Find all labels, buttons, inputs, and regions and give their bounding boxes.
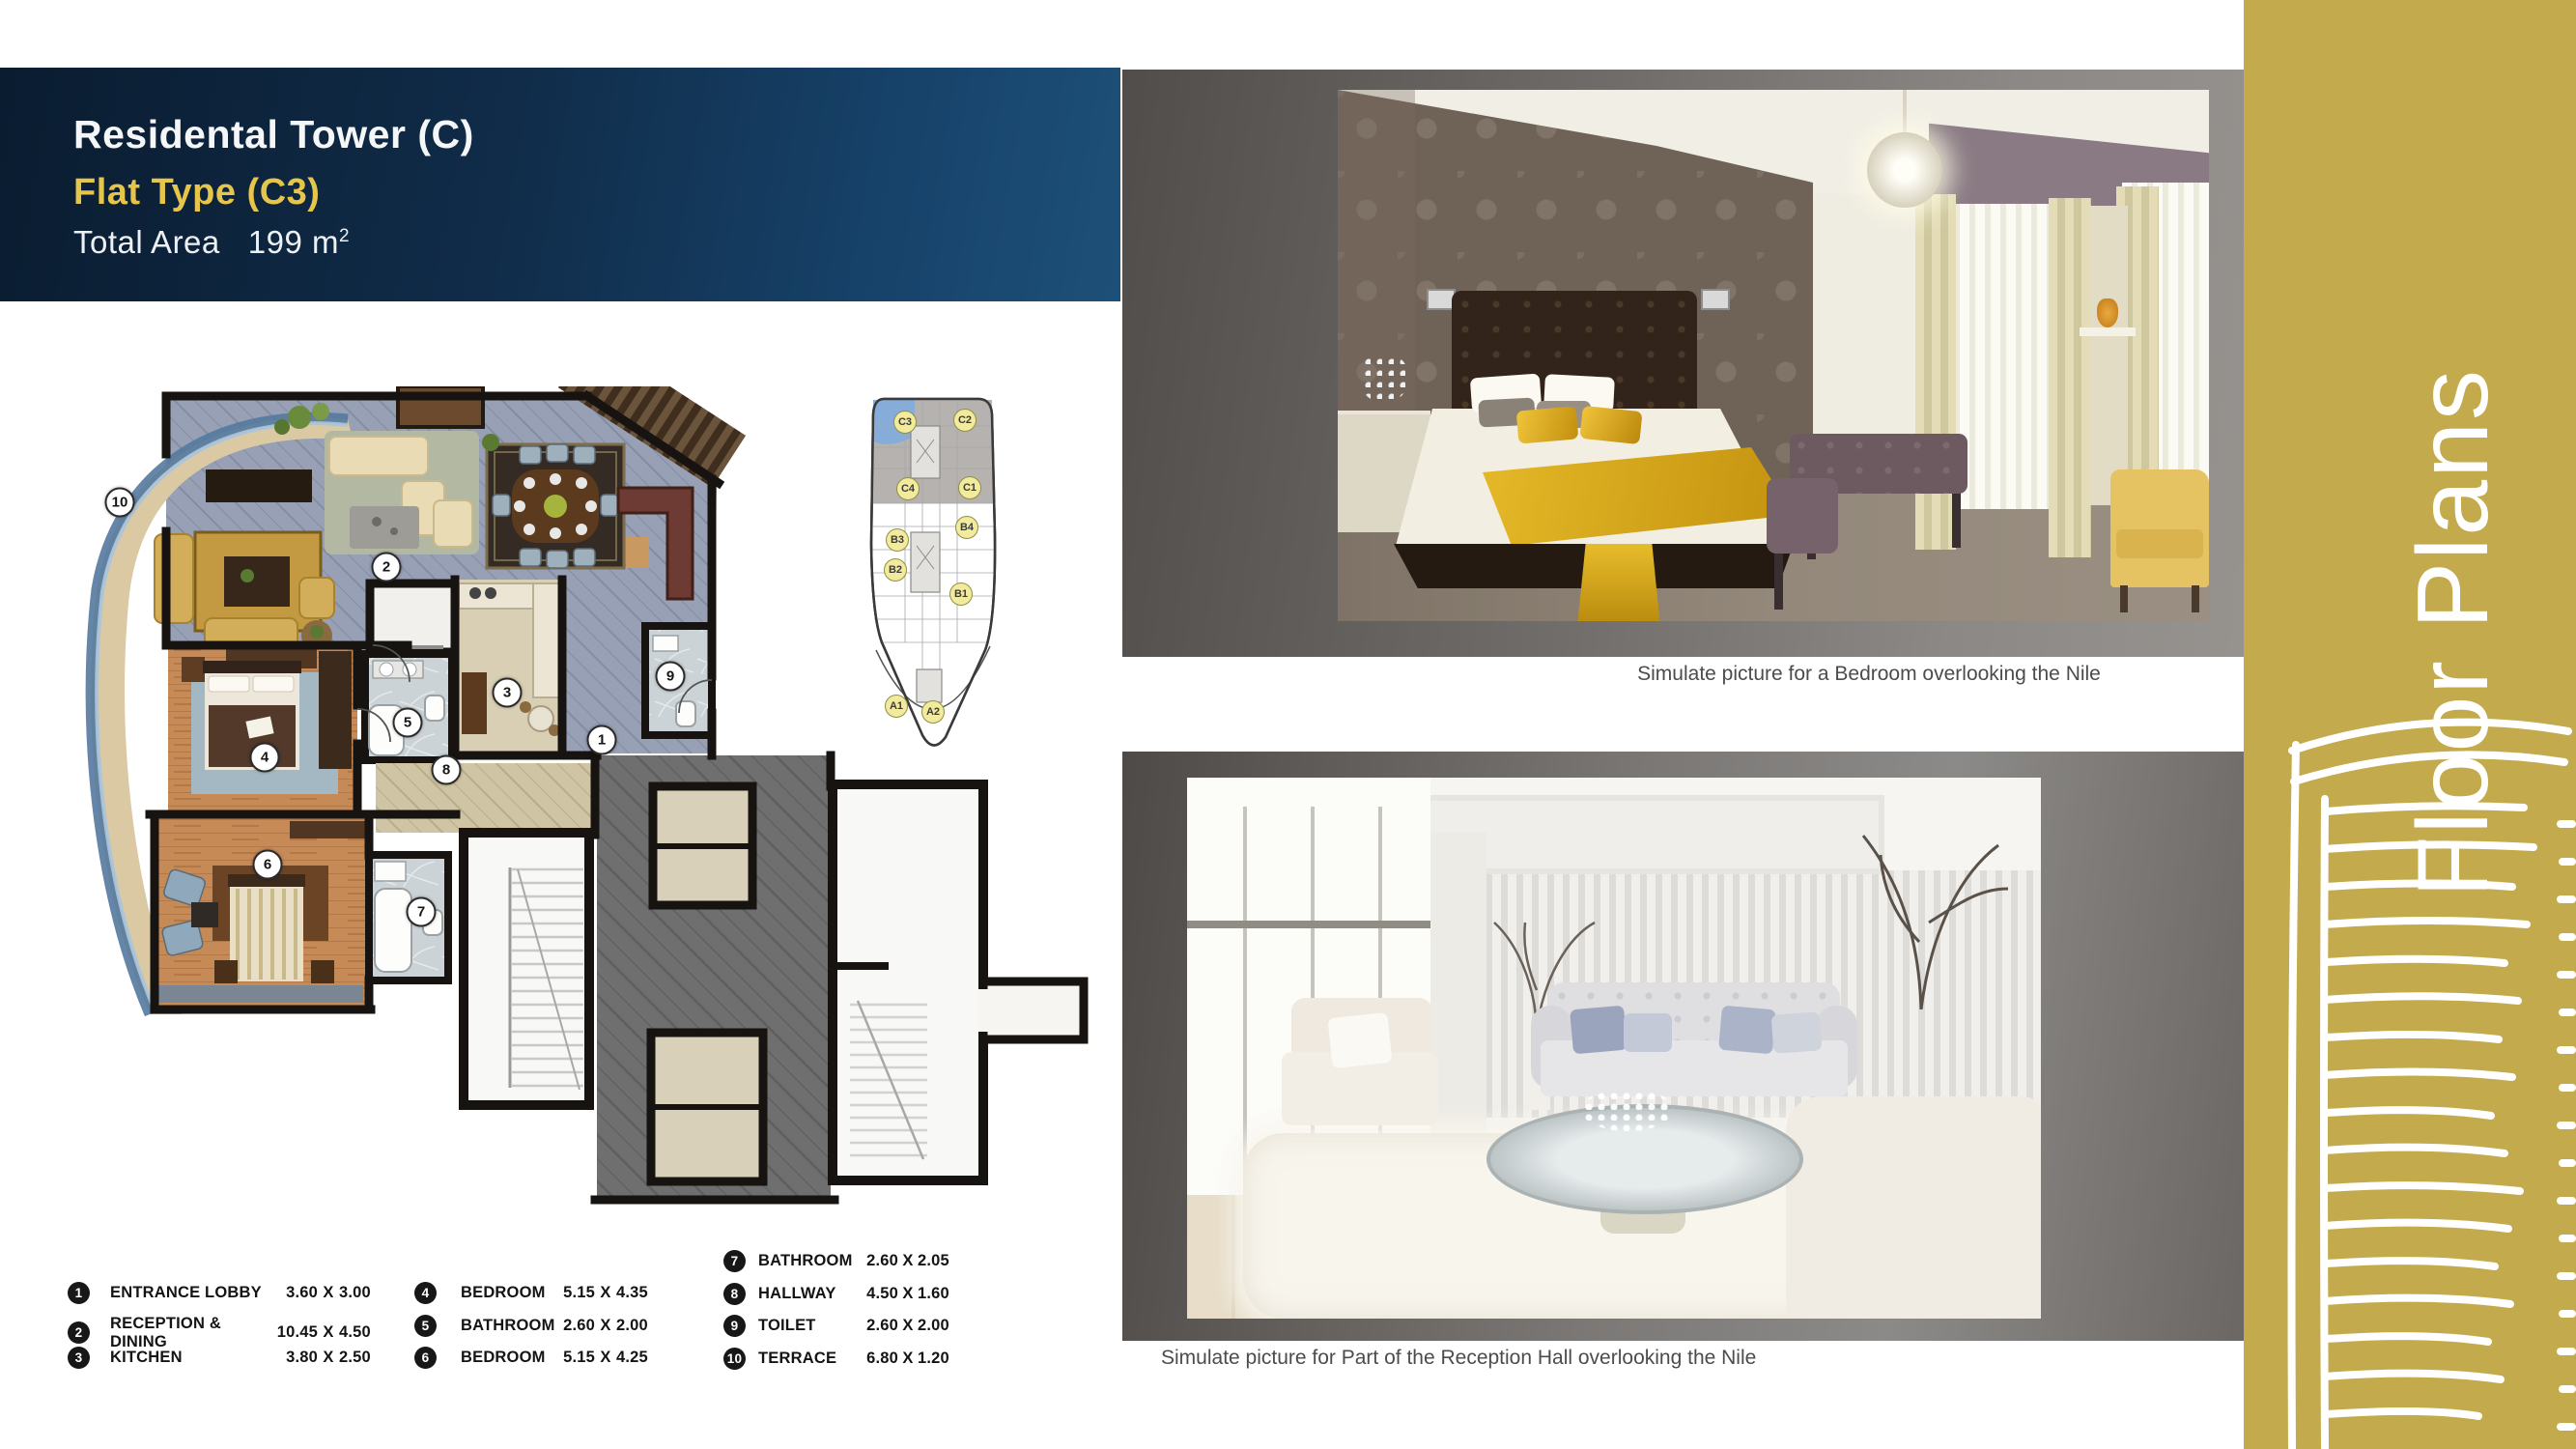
legend-room-name: BEDROOM [461, 1284, 558, 1302]
legend-room-name: BEDROOM [461, 1349, 558, 1367]
legend-number-badge: 6 [414, 1347, 437, 1369]
total-area-line: Total Area 199 m2 [73, 224, 350, 261]
yellow-armchair [2110, 469, 2209, 587]
legend-dimension-height: 1.20 [918, 1350, 961, 1368]
key-plan-unit-label: A2 [926, 706, 940, 718]
legend-number-badge: 5 [414, 1315, 437, 1337]
legend-dimension-separator: X [595, 1349, 616, 1367]
legend-number-badge: 9 [723, 1315, 746, 1337]
key-plan-unit-label: C1 [963, 482, 977, 494]
key-plan-unit-badge: C2 [953, 409, 977, 432]
legend-dimension-height: 2.00 [918, 1317, 961, 1335]
plan-room-marker: 7 [407, 897, 437, 927]
legend-number-badge: 3 [68, 1347, 90, 1369]
plan-room-marker: 1 [587, 725, 617, 755]
header-banner: Residental Tower (C) Flat Type (C3) Tota… [0, 68, 1120, 301]
legend-room-name: ENTRANCE LOBBY [110, 1284, 268, 1302]
legend-row: 2 RECEPTION & DINING 10.45 X 4.50 [68, 1315, 385, 1336]
plan-room-marker-number: 2 [382, 559, 390, 576]
legend-number-badge: 7 [723, 1250, 746, 1272]
plan-room-marker-number: 8 [442, 762, 450, 779]
tower-sketch-icon [2280, 710, 2576, 1449]
legend-dimension-height: 4.50 [339, 1323, 385, 1342]
key-plan-unit-label: C2 [958, 414, 972, 426]
plan-room-marker: 8 [432, 755, 462, 785]
bedroom-photo-panel [1122, 70, 2244, 657]
legend-row: 7 BATHROOM 2.60 X 2.05 [723, 1250, 961, 1271]
legend-dimension-height: 1.60 [918, 1285, 961, 1303]
legend-dimension-width: 10.45 [268, 1323, 318, 1342]
total-area-label: Total Area [73, 224, 220, 260]
legend-room-name: BATHROOM [461, 1317, 558, 1335]
key-plan-unit-badge: C1 [958, 476, 981, 499]
floor-plans-sidebar: Floor Plans [2244, 0, 2576, 1449]
key-plan-unit-label: B4 [960, 522, 974, 533]
plan-room-marker: 6 [253, 850, 283, 880]
reception-photo-caption: Simulate picture for Part of the Recepti… [1161, 1347, 1756, 1370]
plan-room-marker: 2 [372, 553, 402, 582]
key-plan-unit-badge: A1 [885, 695, 908, 718]
legend-dimension-width: 5.15 [558, 1349, 595, 1367]
page-title: Residental Tower (C) [73, 112, 474, 157]
plan-room-marker-number: 10 [112, 495, 128, 511]
legend-dimension-height: 2.50 [339, 1349, 385, 1367]
legend-dimension-height: 2.05 [918, 1252, 961, 1270]
plan-room-marker: 9 [656, 662, 686, 692]
key-plan: C3 C2 C4 C1 B4 B3 B2 B1 A1 A2 [855, 391, 1000, 763]
legend-dimension-height: 3.00 [339, 1284, 385, 1302]
total-area-exponent: 2 [339, 226, 350, 246]
reception-photo-panel [1122, 752, 2244, 1341]
plan-room-marker-number: 7 [417, 904, 425, 921]
key-plan-unit-badge: B1 [949, 582, 973, 606]
legend-dimension-height: 4.25 [616, 1349, 660, 1367]
total-area-value: 199 m [248, 224, 339, 260]
plan-room-marker: 5 [393, 708, 423, 738]
key-plan-unit-label: A1 [890, 700, 903, 712]
legend-room-name: HALLWAY [758, 1285, 860, 1303]
legend-row: 6 BEDROOM 5.15 X 4.25 [414, 1347, 660, 1368]
legend-room-name: TOILET [758, 1317, 860, 1335]
key-plan-unit-badge: B2 [884, 558, 907, 582]
bedroom-photo-caption: Simulate picture for a Bedroom overlooki… [1487, 663, 2250, 686]
plan-room-marker: 10 [105, 488, 135, 518]
key-plan-unit-label: B3 [891, 534, 904, 546]
flat-type-subtitle: Flat Type (C3) [73, 172, 320, 213]
key-plan-unit-badge: B4 [955, 516, 978, 539]
legend-row: 8 HALLWAY 4.50 X 1.60 [723, 1283, 961, 1304]
legend-number-badge: 2 [68, 1321, 90, 1344]
legend-dimension-separator: X [318, 1349, 339, 1367]
branch-decor [1805, 797, 2037, 1009]
plan-room-marker-number: 4 [261, 750, 269, 766]
legend-row: 3 KITCHEN 3.80 X 2.50 [68, 1347, 385, 1368]
legend-dimension-separator: X [318, 1323, 339, 1342]
brochure-page: Residental Tower (C) Flat Type (C3) Tota… [0, 0, 2576, 1449]
bedroom-photo [1338, 90, 2209, 621]
key-plan-unit-label: C4 [901, 483, 915, 495]
key-plan-unit-label: B1 [954, 588, 968, 600]
legend-dimension-separator: X [595, 1284, 616, 1302]
legend-dimension-height: 4.35 [616, 1284, 660, 1302]
right-armchair [1786, 1096, 2041, 1319]
plan-room-marker: 4 [250, 743, 280, 773]
legend-dimension-width: 4.50 [860, 1285, 898, 1303]
legend-room-name: TERRACE [758, 1350, 860, 1368]
legend-dimension-height: 2.00 [616, 1317, 660, 1335]
legend-row: 1 ENTRANCE LOBBY 3.60 X 3.00 [68, 1282, 385, 1303]
crystal-bowl [1581, 1089, 1674, 1131]
legend-dimension-width: 2.60 [558, 1317, 595, 1335]
legend-dimension-separator: X [898, 1350, 918, 1368]
legend-number-badge: 4 [414, 1282, 437, 1304]
legend-dimension-width: 6.80 [860, 1350, 898, 1368]
legend-dimension-width: 2.60 [860, 1252, 898, 1270]
legend-column-2: 4 BEDROOM 5.15 X 4.35 5 BATHROOM 2.60 X … [414, 1282, 660, 1379]
legend-dimension-separator: X [595, 1317, 616, 1335]
chandelier [1867, 132, 1942, 208]
key-plan-unit-badge: C4 [896, 477, 920, 500]
plan-room-marker-number: 1 [598, 732, 606, 749]
legend-dimension-separator: X [898, 1252, 918, 1270]
legend-row: 10 TERRACE 6.80 X 1.20 [723, 1348, 961, 1369]
legend-dimension-separator: X [898, 1317, 918, 1335]
legend-dimension-width: 3.80 [268, 1349, 318, 1367]
legend-column-1: 1 ENTRANCE LOBBY 3.60 X 3.00 2 RECEPTION… [68, 1282, 385, 1379]
legend-number-badge: 8 [723, 1283, 746, 1305]
legend-dimension-width: 5.15 [558, 1284, 595, 1302]
legend-row: 9 TOILET 2.60 X 2.00 [723, 1315, 961, 1336]
key-plan-unit-label: B2 [889, 564, 902, 576]
key-plan-unit-badge: B3 [886, 528, 909, 552]
legend-row: 4 BEDROOM 5.15 X 4.35 [414, 1282, 660, 1303]
legend-number-badge: 1 [68, 1282, 90, 1304]
legend-dimension-width: 3.60 [268, 1284, 318, 1302]
legend-column-3: 7 BATHROOM 2.60 X 2.05 8 HALLWAY 4.50 X … [723, 1250, 961, 1379]
legend-row: 5 BATHROOM 2.60 X 2.00 [414, 1315, 660, 1336]
plan-room-marker-number: 3 [503, 685, 511, 701]
legend-room-name: KITCHEN [110, 1349, 268, 1367]
plan-room-marker-number: 5 [404, 715, 411, 731]
plan-room-marker: 3 [493, 678, 523, 708]
legend-room-name: BATHROOM [758, 1252, 860, 1270]
reception-photo [1187, 778, 2041, 1319]
legend-dimension-separator: X [318, 1284, 339, 1302]
plan-room-marker-number: 6 [264, 857, 271, 873]
key-plan-unit-badge: C3 [893, 411, 917, 434]
key-plan-unit-label: C3 [898, 416, 912, 428]
legend-dimension-width: 2.60 [860, 1317, 898, 1335]
plan-room-marker-number: 9 [666, 668, 674, 685]
legend-dimension-separator: X [898, 1285, 918, 1303]
legend-room-name: RECEPTION & DINING [110, 1315, 268, 1351]
legend-number-badge: 10 [723, 1348, 746, 1370]
key-plan-unit-badge: A2 [921, 700, 945, 724]
